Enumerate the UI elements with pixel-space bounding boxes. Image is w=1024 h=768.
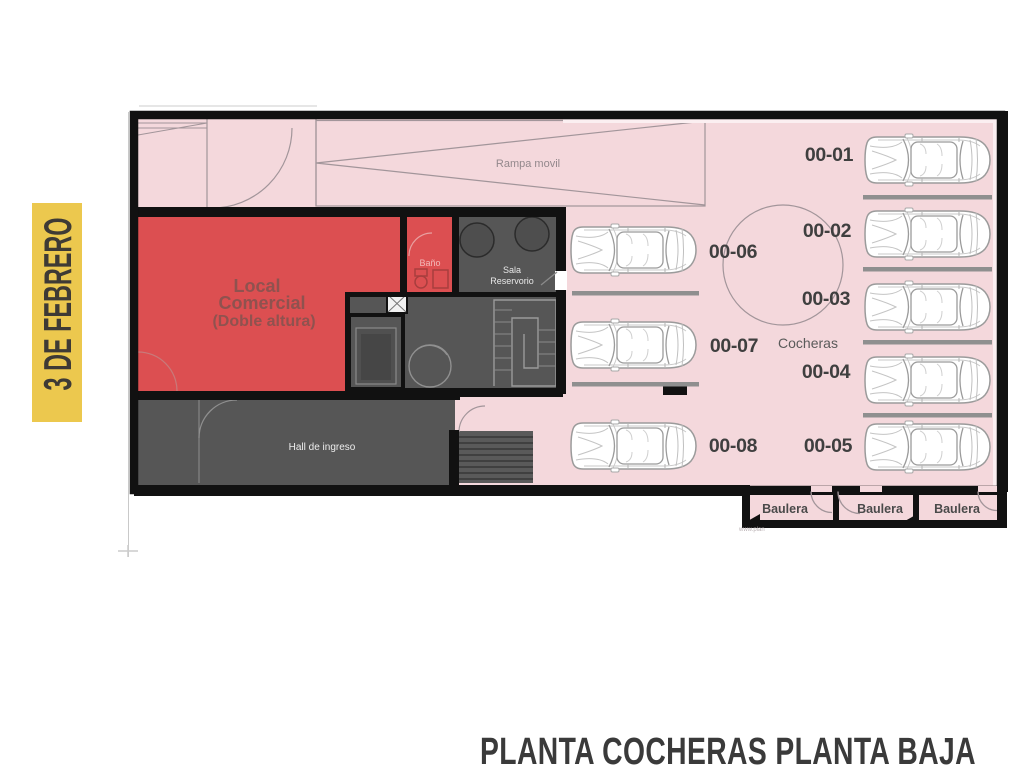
svg-text:Reservorio: Reservorio [490,276,534,286]
svg-text:00-08: 00-08 [709,435,758,457]
svg-text:00-05: 00-05 [804,435,853,457]
svg-text:00-03: 00-03 [802,288,851,310]
svg-text:00-06: 00-06 [709,241,758,263]
svg-text:Rampa movil: Rampa movil [496,158,560,170]
svg-text:PLANTA COCHERAS PLANTA BAJA: PLANTA COCHERAS PLANTA BAJA [480,731,976,768]
svg-text:00-04: 00-04 [802,361,851,383]
svg-text:Cocheras: Cocheras [778,335,838,351]
svg-text:00-02: 00-02 [803,220,852,242]
svg-text:Baulera: Baulera [934,502,981,516]
svg-text:Baño: Baño [419,258,440,268]
svg-text:(Doble altura): (Doble altura) [212,313,315,330]
svg-text:3 DE FEBRERO: 3 DE FEBRERO [36,218,80,391]
svg-text:00-07: 00-07 [710,335,758,357]
svg-text:Baulera: Baulera [762,502,809,516]
svg-text:Sala: Sala [503,265,521,275]
svg-text:Comercial: Comercial [218,293,305,313]
svg-text:Hall de ingreso: Hall de ingreso [289,442,356,453]
svg-text:Baulera: Baulera [857,502,904,516]
svg-text:00-01: 00-01 [805,144,854,166]
svg-text:www.plan: www.plan [738,527,765,533]
